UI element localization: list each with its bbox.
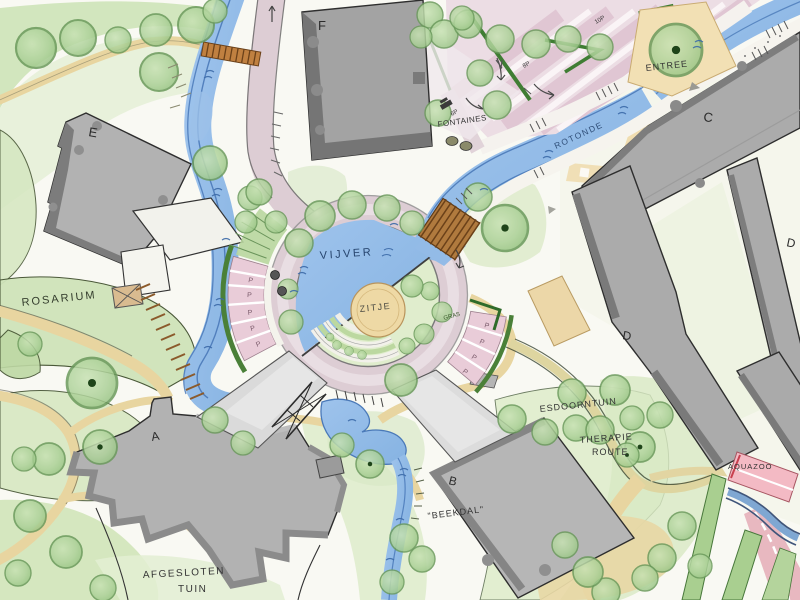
- svg-text:F: F: [318, 18, 326, 33]
- svg-text:P: P: [247, 292, 252, 299]
- svg-text:AQUAZOO: AQUAZOO: [728, 462, 773, 471]
- svg-text:TUIN: TUIN: [178, 584, 207, 595]
- svg-text:ROUTE: ROUTE: [592, 447, 629, 457]
